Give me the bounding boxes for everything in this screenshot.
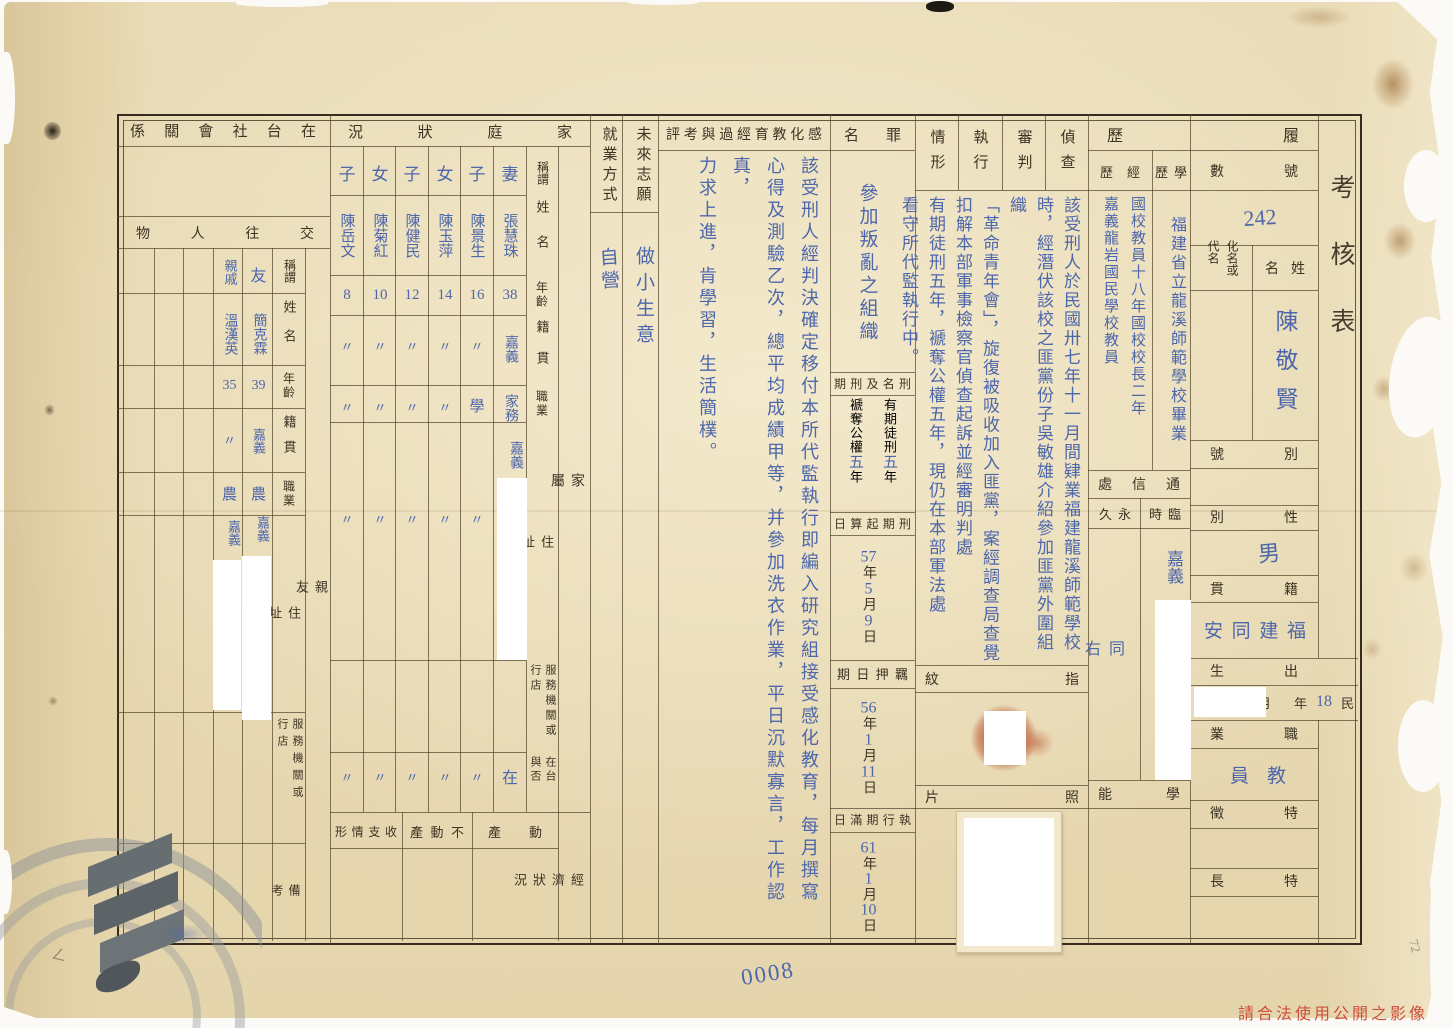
contact-temp-label: 臨時 — [1142, 500, 1188, 526]
economy-movable-header: 動產 — [475, 818, 555, 844]
detention-month: 1 — [859, 732, 877, 748]
case-summary-line: 「革命青年會」，旋復被吸收加入匪黨，案經調查局查覺 — [976, 196, 1003, 664]
family-name-header: 姓名 — [528, 200, 556, 270]
contacts-occupation-header: 職業 — [275, 476, 303, 512]
sentence-deprive: 褫奪公權 — [848, 398, 863, 454]
member-address: 〃 — [397, 502, 427, 534]
birth-year-unit: 年 — [1294, 693, 1307, 712]
member-in-taiwan: 〃 — [397, 756, 427, 796]
member-relation: 女 — [430, 152, 460, 192]
fingerprint-label: 指紋 — [920, 667, 1084, 691]
sentence-term-unit: 年 — [882, 470, 897, 484]
member-in-taiwan: 〃 — [462, 756, 492, 796]
photo-label: 照片 — [920, 786, 1084, 807]
page-title: 考核表 — [1320, 168, 1360, 380]
member-name: 陳景生 — [462, 198, 492, 272]
redaction-temp-address — [1155, 600, 1191, 780]
resume-band-label: 履歷 — [1093, 120, 1313, 148]
start-month: 5 — [859, 581, 877, 597]
redaction-contact-address — [213, 560, 241, 710]
economy-label: 經濟狀況 — [562, 824, 586, 934]
redaction-birth — [1194, 687, 1266, 717]
situation-label: 情形 — [918, 122, 956, 186]
family-in-taiwan-header: 在台與否 — [527, 756, 557, 796]
sentence-deprive-unit: 年 — [848, 470, 863, 484]
member-name: 陳健民 — [397, 198, 427, 272]
sentence-term: 有期徒刑 — [882, 398, 897, 454]
member-native: 〃 — [332, 330, 362, 360]
member-native: 嘉義 — [495, 318, 525, 380]
family-relation-header: 稱謂 — [528, 154, 556, 192]
reform-line: 該受刑人經判決確定移付本所代監執行即編入研究組接受感化教育，每月撰寫 — [792, 156, 826, 942]
economy-immovable-header: 不動產 — [405, 818, 469, 844]
redaction-photo — [964, 818, 1054, 946]
detention-day: 11 — [859, 764, 877, 780]
member-age: 12 — [397, 278, 427, 312]
birth-era: 民 — [1341, 693, 1354, 712]
marks-label: 特徵 — [1194, 801, 1314, 825]
crime-value: 參加叛亂之組織 — [846, 156, 888, 370]
expiry-value: 61年1月10日 — [848, 834, 888, 938]
contacts-age-header: 年齡 — [275, 368, 303, 404]
birth-label: 出生 — [1194, 659, 1314, 683]
contact-perm-label: 永久 — [1092, 500, 1138, 526]
contacts-band-label: 交往人物 — [130, 221, 320, 245]
member-name: 陳岳文 — [332, 198, 362, 272]
redaction-contact-address — [242, 556, 271, 720]
expiry-month: 1 — [859, 871, 877, 887]
family-occupation-header: 職業 — [528, 387, 556, 421]
name-value: 陳敬賢 — [1262, 298, 1306, 436]
member-age: 8 — [332, 278, 362, 312]
reform-line: 心得及測驗乙次，總平均成績甲等，并參加洗衣作業，平日沉默寡言，工作認真， — [724, 156, 792, 942]
member-name: 張慧珠 — [495, 198, 525, 272]
start-day: 9 — [859, 613, 877, 629]
member-age: 38 — [495, 278, 525, 312]
member-relation: 妻 — [495, 152, 525, 192]
reform-text: 該受刑人經判決確定移付本所代監執行即編入研究組接受感化教育，每月撰寫 心得及測驗… — [678, 156, 826, 942]
execution-label: 執行 — [961, 122, 999, 186]
member-address: 〃 — [430, 502, 460, 534]
contact-address: 嘉義 — [245, 500, 272, 558]
member-relation: 子 — [332, 152, 362, 192]
term-start-label: 刑期起算日 — [832, 514, 913, 533]
experience-line: 國校教員十八年國校校長二年 — [1123, 196, 1150, 468]
aspiration-label: 未來志願 — [629, 120, 657, 212]
contact-perm-value: 同右 — [1100, 542, 1126, 754]
birth-year: 18 — [1316, 693, 1332, 711]
member-occupation: 學 — [462, 388, 492, 422]
detention-year: 56 — [859, 700, 877, 716]
sentence-deprive-years: 五 — [847, 454, 863, 470]
member-occupation: 家務 — [495, 386, 525, 430]
detention-value: 56年1月11日 — [848, 692, 888, 804]
social-band-label: 在台社會關係 — [126, 118, 320, 142]
reform-label: 感化教育經過與考評 — [660, 121, 828, 147]
serial-label: 號數 — [1194, 156, 1314, 186]
family-workplace-header: 服務機關或行店 — [527, 664, 557, 750]
case-summary-line: 該受刑人於民國卅七年十一月間肄業福建龍溪師範學校 — [1057, 196, 1084, 664]
contacts-relation-header: 稱謂 — [275, 252, 303, 290]
expiry-label: 執行期滿日 — [832, 810, 913, 829]
occupation-label: 職業 — [1194, 722, 1314, 746]
contact-native: 〃 — [216, 424, 243, 454]
member-native: 〃 — [365, 330, 395, 360]
contacts-workplace-header: 服務機關或行店 — [274, 718, 304, 810]
aspiration-value: 做小生意 — [627, 232, 657, 364]
contact-temp-value: 嘉義 — [1158, 534, 1186, 600]
member-address: 〃 — [462, 502, 492, 534]
redaction-fingerprint — [984, 711, 1026, 765]
family-native-header: 籍貫 — [528, 320, 556, 382]
member-name: 陳菊紅 — [365, 198, 395, 272]
education-label: 學歷 — [1154, 157, 1188, 185]
member-in-taiwan: 〃 — [430, 756, 460, 796]
contacts-group-label: 親友 — [308, 258, 330, 914]
native-place-value: 福建同安 — [1196, 604, 1314, 654]
case-summary-line: 扣解本部軍事檢察官偵查起訴並經審明判處 — [949, 196, 976, 664]
education-value: 福建省立龍溪師範學校畢業 — [1156, 196, 1188, 464]
start-year: 57 — [859, 549, 877, 565]
reform-line: 力求上進，肯學習，生活簡樸。 — [690, 156, 724, 942]
member-occupation: 〃 — [332, 392, 362, 420]
economy-income-header: 收支情形 — [333, 818, 399, 844]
occupation-value: 教員 — [1214, 752, 1302, 796]
member-in-taiwan: 在 — [495, 756, 525, 796]
contact-native: 嘉義 — [245, 412, 272, 470]
native-place-label: 籍貫 — [1194, 577, 1314, 601]
contacts-native-header: 籍貫 — [275, 412, 303, 468]
sentence-term-years: 五 — [881, 454, 897, 470]
member-age: 10 — [365, 278, 395, 312]
member-native: 〃 — [397, 330, 427, 360]
member-occupation: 〃 — [365, 392, 395, 420]
alias-label: 化名或代名 — [1194, 240, 1250, 286]
member-address: 嘉義 — [495, 426, 525, 484]
family-group-label: 家屬 — [562, 164, 586, 796]
term-start-value: 57年5月9日 — [848, 538, 888, 656]
case-summary-line: 時，經潛伏該校之匪黨份子吳敏雄介紹參加匪黨外圍組織 — [1003, 196, 1057, 664]
contacts-name-header: 姓名 — [275, 298, 303, 360]
member-native: 〃 — [462, 330, 492, 360]
contact-address: 嘉義 — [216, 504, 243, 562]
case-summary-line: 有期徒刑五年，褫奪公權五年，現仍在本部軍法處 — [922, 196, 949, 664]
sentence-label: 刑名及刑期 — [832, 374, 913, 393]
alt-name-label: 別號 — [1194, 442, 1314, 466]
expiry-day: 10 — [859, 902, 877, 918]
expiry-year: 61 — [859, 840, 877, 856]
member-native: 〃 — [430, 330, 460, 360]
trial-label: 審判 — [1005, 122, 1043, 186]
ability-label: 學能 — [1092, 782, 1186, 806]
sentence-value: 有期徒刑五年 褫奪公權五年 — [832, 398, 913, 510]
member-in-taiwan: 〃 — [332, 756, 362, 796]
family-age-header: 年齡 — [528, 277, 556, 313]
contact-name: 溫漢英 — [216, 298, 243, 370]
contact-name: 簡克霖 — [245, 298, 272, 370]
specialty-label: 特長 — [1194, 869, 1314, 893]
member-address: 〃 — [332, 502, 362, 534]
contact-age: 39 — [245, 370, 272, 402]
member-occupation: 〃 — [430, 392, 460, 420]
experience-line: 嘉義龍岩國民學校教員 — [1096, 196, 1123, 468]
member-name: 陳玉萍 — [430, 198, 460, 272]
contact-relation: 親戚 — [217, 250, 243, 294]
member-relation: 子 — [397, 152, 427, 192]
contact-age: 35 — [216, 370, 243, 402]
name-label: 姓名 — [1258, 250, 1312, 286]
detention-label: 羈押日期 — [832, 662, 913, 684]
family-band-label: 家庭狀況 — [340, 119, 580, 143]
member-age: 14 — [430, 278, 460, 312]
experience-value: 國校教員十八年國校校長二年 嘉義龍岩國民學校教員 — [1090, 196, 1150, 468]
member-relation: 女 — [365, 152, 395, 192]
sex-value: 男 — [1248, 530, 1289, 573]
member-in-taiwan: 〃 — [365, 756, 395, 796]
family-address-header: 住址 — [528, 428, 556, 654]
redaction-member-address — [497, 478, 527, 660]
sex-label: 性別 — [1194, 506, 1314, 528]
serial-value: 242 — [1229, 194, 1292, 242]
employment-value: 自營 — [591, 235, 626, 305]
member-occupation: 〃 — [397, 392, 427, 420]
member-age: 16 — [462, 278, 492, 312]
crime-label: 罪名 — [833, 121, 912, 147]
investigation-label: 偵查 — [1048, 122, 1086, 186]
contacts-notes-header: 備考 — [275, 850, 303, 930]
experience-label: 經歷 — [1092, 157, 1148, 185]
usage-watermark: 請合法使用公開之影像 — [1238, 1000, 1453, 1022]
contacts-address-header: 住址 — [275, 522, 303, 702]
contact-relation: 友 — [245, 256, 272, 292]
member-relation: 子 — [462, 152, 492, 192]
contact-label: 通信處 — [1092, 472, 1186, 496]
employment-label: 就業方式 — [595, 120, 623, 212]
member-address: 〃 — [365, 502, 395, 534]
case-summary: 該受刑人於民國卅七年十一月間肄業福建龍溪師範學校 時，經潛伏該校之匪黨份子吳敏雄… — [918, 196, 1084, 664]
